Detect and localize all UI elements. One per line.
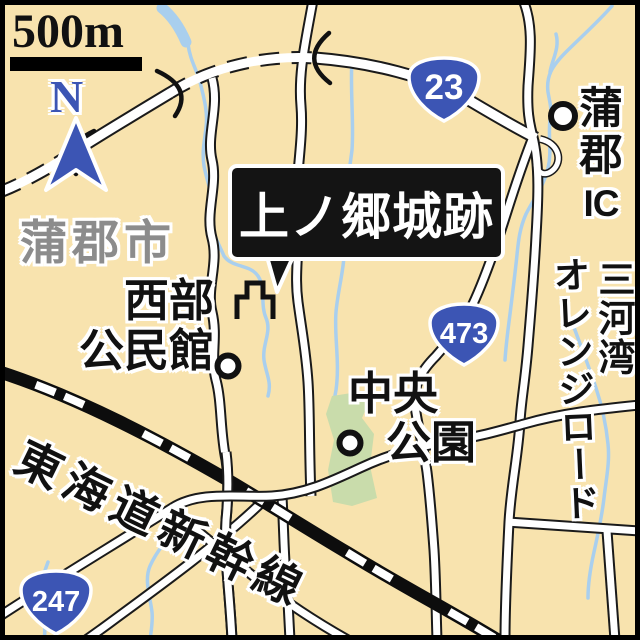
route-shield-247-number: 247 (32, 586, 80, 618)
community-center-label: 西部 公民館 (68, 276, 214, 376)
scale-bar (10, 57, 142, 71)
stream-pond (162, 8, 186, 42)
community-center-marker (218, 356, 239, 377)
scale-label: 500m (12, 4, 124, 59)
orange-road-label: オレンジロード (540, 255, 606, 523)
gamagori-ic-marker (551, 104, 575, 128)
castle-callout-title: 上ノ郷城跡 (239, 177, 494, 249)
map-canvas: 23 473 247 500m N 蒲郡市 上ノ郷城跡 西部 公民館 中央 公園… (0, 0, 640, 640)
route-shield-23: 23 (409, 58, 479, 121)
route-shield-473-number: 473 (440, 318, 488, 350)
north-arrow-icon (46, 118, 106, 190)
north-label: N (50, 70, 83, 123)
castle-ruin-icon (237, 283, 273, 319)
city-label: 蒲郡市 (20, 204, 176, 273)
castle-callout: 上ノ郷城跡 (228, 164, 505, 261)
gamagori-ic-label: 蒲 郡 IC (577, 86, 625, 227)
central-park-label: 中央 公園 (348, 369, 476, 467)
route-shield-247: 247 (21, 571, 91, 634)
route-shield-23-number: 23 (425, 68, 464, 107)
